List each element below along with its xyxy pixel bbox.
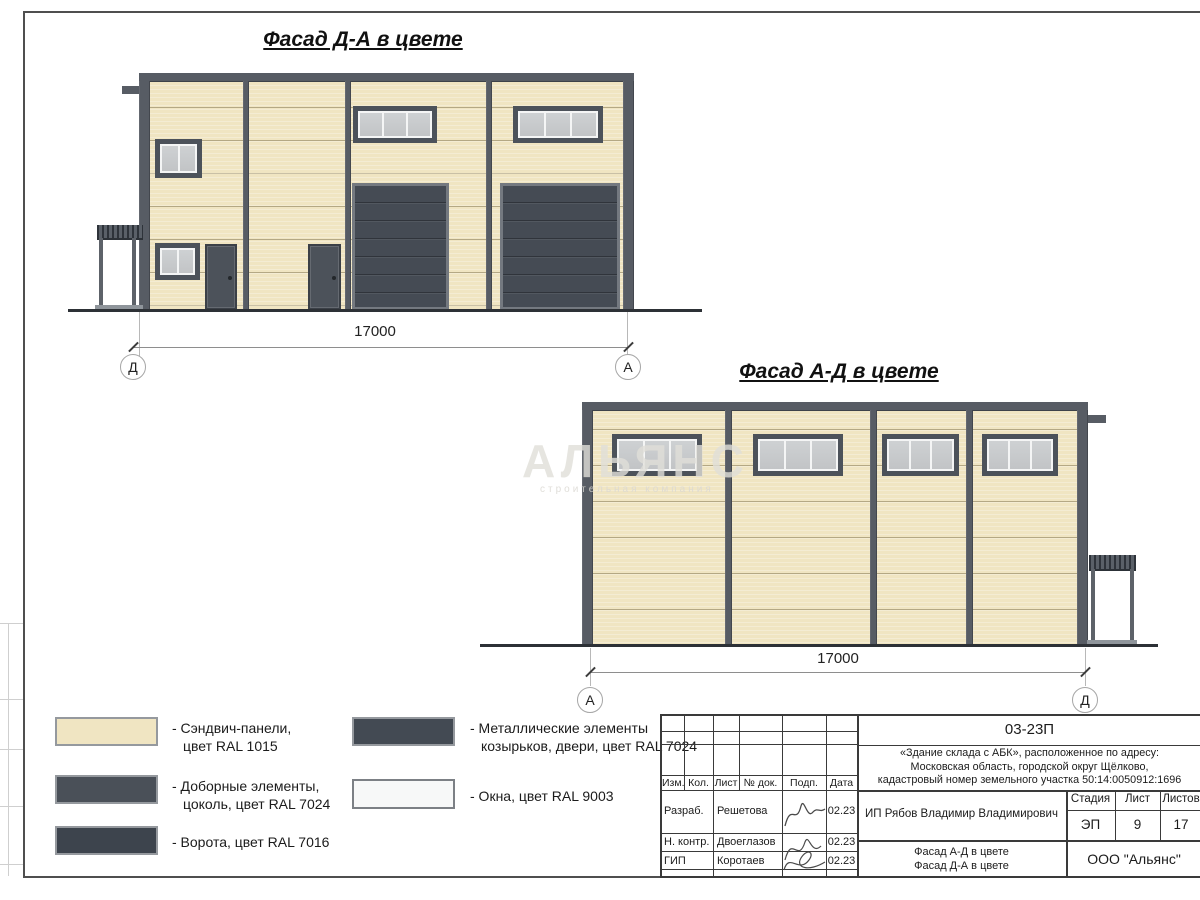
facade-da-window xyxy=(155,243,200,280)
title-block-grid-line xyxy=(1066,810,1200,811)
legend-label-line: - Ворота, цвет RAL 7016 xyxy=(172,833,329,851)
window-pane xyxy=(162,146,178,171)
col-header-stadia: Стадия xyxy=(1066,793,1115,805)
facade-da-window xyxy=(513,106,603,143)
watermark-text: АЛЬЯНС xyxy=(522,434,749,488)
facade-ad-title: Фасад А-Д в цвете xyxy=(656,360,1022,384)
signer-role: Разраб. xyxy=(664,804,704,818)
window-pane xyxy=(162,250,177,273)
facade-ad-window xyxy=(753,434,843,476)
facade-ad-dimension: 17000 xyxy=(763,650,913,667)
legend-label: - Доборные элементы, цоколь, цвет RAL 70… xyxy=(172,777,330,813)
legend-swatch-windows xyxy=(352,779,455,809)
axis-marker-a: А xyxy=(615,354,641,380)
signer-name: Двоеглазов xyxy=(717,835,775,849)
axis-marker-d: Д xyxy=(1072,687,1098,713)
frame-top-line xyxy=(23,11,1200,13)
window-pane xyxy=(572,113,596,136)
project-description-line: кадастровый номер земельного участка 50:… xyxy=(860,774,1199,788)
facade-ad-canopy xyxy=(1089,555,1136,571)
client-name: ИП Рябов Владимир Владимирович xyxy=(857,808,1066,820)
title-block-grid-line xyxy=(662,744,857,745)
canopy-post xyxy=(132,238,136,308)
window-pane xyxy=(889,441,909,469)
organization-name: ООО "Альянс" xyxy=(1066,851,1200,867)
sheet-number-value: 9 xyxy=(1115,817,1160,832)
signer-name: Коротаев xyxy=(717,854,765,868)
left-stamp-line xyxy=(0,623,23,624)
col-header-data: Дата xyxy=(826,776,857,790)
extension-line xyxy=(627,312,628,358)
legend-label-line: цоколь, цвет RAL 7024 xyxy=(172,795,330,813)
facade-ad-roof-edge xyxy=(1087,415,1106,423)
facade-da-parapet xyxy=(139,73,634,82)
facade-da-column xyxy=(345,81,351,310)
facade-da-roof-edge xyxy=(122,86,140,94)
legend-swatch-sandwich-panels xyxy=(55,717,158,746)
legend-label: - Окна, цвет RAL 9003 xyxy=(470,787,614,805)
signature-razrab xyxy=(781,794,827,834)
facade-ad-window xyxy=(882,434,959,476)
col-header-sheet: Лист xyxy=(1115,793,1160,805)
document-number: 03-23П xyxy=(857,721,1200,738)
extension-line xyxy=(139,312,140,358)
window-pane xyxy=(812,441,836,469)
facade-da-gate xyxy=(352,183,449,310)
facade-da-door xyxy=(205,244,237,310)
facade-ad-column xyxy=(966,410,973,645)
title-block-grid-line xyxy=(662,790,857,791)
signer-role: Н. контр. xyxy=(664,835,709,849)
project-description-line: «Здание склада с АБК», расположенное по … xyxy=(860,747,1199,761)
facade-da-gate xyxy=(500,183,620,310)
facade-da-column xyxy=(623,81,634,310)
window-pane xyxy=(408,113,430,136)
canopy-post xyxy=(1091,569,1095,641)
title-block-grid-line xyxy=(857,840,1200,842)
sheets-total-value: 17 xyxy=(1160,817,1200,832)
facade-da-window xyxy=(353,106,437,143)
facade-da-window xyxy=(155,139,202,178)
left-stamp-line xyxy=(0,864,23,865)
legend-swatch-gates xyxy=(55,826,158,855)
col-header-izm: Изм. xyxy=(662,776,684,790)
window-pane xyxy=(911,441,931,469)
facade-da-drawing xyxy=(139,73,634,310)
legend-label: - Ворота, цвет RAL 7016 xyxy=(172,833,329,851)
watermark-subtext: строительная компания xyxy=(540,484,714,495)
signature-kontr-gip xyxy=(779,830,829,876)
window-pane xyxy=(1032,441,1051,469)
window-pane xyxy=(384,113,406,136)
project-description: «Здание склада с АБК», расположенное по … xyxy=(860,747,1199,788)
facade-da-column xyxy=(139,81,150,310)
drawing-sheet: Фасад Д-А в цвете xyxy=(0,0,1200,900)
col-header-kol: Кол. xyxy=(684,776,713,790)
sheet-title-line: Фасад А-Д в цвете xyxy=(857,845,1066,859)
legend-swatch-trim-elements xyxy=(55,775,158,804)
facade-ad-column xyxy=(870,410,877,645)
canopy-post xyxy=(99,238,103,308)
extension-line xyxy=(1085,648,1086,686)
sheet-title: Фасад А-Д в цвете Фасад Д-А в цвете xyxy=(857,845,1066,873)
col-header-podp: Подп. xyxy=(782,776,826,790)
facade-da-column xyxy=(243,81,249,310)
facade-ad-ground-line xyxy=(480,644,1158,647)
legend-swatch-metal-elements xyxy=(352,717,455,746)
legend-label-line: - Доборные элементы, xyxy=(172,777,330,795)
stadia-value: ЭП xyxy=(1066,817,1115,832)
left-stamp-line xyxy=(0,806,23,807)
left-stamp-line xyxy=(8,623,9,876)
signer-date: 02.23 xyxy=(826,835,857,849)
facade-da-canopy xyxy=(97,225,143,240)
sheet-title-line: Фасад Д-А в цвете xyxy=(857,859,1066,873)
legend-label-line: - Окна, цвет RAL 9003 xyxy=(470,787,614,805)
title-block-grid-line xyxy=(713,716,714,876)
title-block-border xyxy=(660,876,1200,878)
title-block-grid-line xyxy=(857,745,1200,746)
facade-da-dimension: 17000 xyxy=(300,323,450,340)
facade-da-title: Фасад Д-А в цвете xyxy=(180,28,546,52)
door-handle xyxy=(228,276,232,280)
signer-name: Решетова xyxy=(717,804,767,818)
signer-role: ГИП xyxy=(664,854,686,868)
window-pane xyxy=(989,441,1008,469)
left-stamp-line xyxy=(0,749,23,750)
window-pane xyxy=(932,441,952,469)
col-header-ndok: № док. xyxy=(739,776,782,790)
extension-line xyxy=(590,648,591,686)
window-pane xyxy=(179,250,194,273)
facade-da-ground-line xyxy=(68,309,702,312)
door-handle xyxy=(332,276,336,280)
window-pane xyxy=(760,441,784,469)
col-header-list: Лист xyxy=(713,776,739,790)
facade-ad-column xyxy=(1077,410,1088,645)
axis-marker-d: Д xyxy=(120,354,146,380)
frame-left-line xyxy=(23,11,25,878)
col-header-sheets-total: Листов xyxy=(1160,793,1200,805)
window-pane xyxy=(520,113,544,136)
window-pane xyxy=(786,441,810,469)
legend-label: - Сэндвич-панели, цвет RAL 1015 xyxy=(172,719,291,755)
title-block-grid-line xyxy=(857,790,1200,792)
title-block-border xyxy=(660,714,662,878)
window-pane xyxy=(1010,441,1029,469)
legend-label-line: цвет RAL 1015 xyxy=(172,737,291,755)
signer-date: 02.23 xyxy=(826,854,857,868)
facade-da-column xyxy=(486,81,492,310)
title-block: Изм. Кол. Лист № док. Подп. Дата Разраб.… xyxy=(660,714,1200,878)
window-pane xyxy=(360,113,382,136)
title-block-grid-line xyxy=(662,731,857,732)
facade-ad-window xyxy=(982,434,1058,476)
left-stamp-line xyxy=(0,699,23,700)
project-description-line: Московская область, городской округ Щёлк… xyxy=(860,761,1199,775)
window-pane xyxy=(546,113,570,136)
axis-marker-a: А xyxy=(577,687,603,713)
dimension-line xyxy=(133,347,628,348)
canopy-post xyxy=(1130,569,1134,641)
signer-date: 02.23 xyxy=(826,804,857,818)
facade-da-door xyxy=(308,244,341,310)
title-block-border xyxy=(660,714,1200,716)
dimension-line xyxy=(590,672,1085,673)
window-pane xyxy=(180,146,196,171)
facade-ad-parapet xyxy=(582,402,1088,411)
legend-label-line: - Сэндвич-панели, xyxy=(172,719,291,737)
